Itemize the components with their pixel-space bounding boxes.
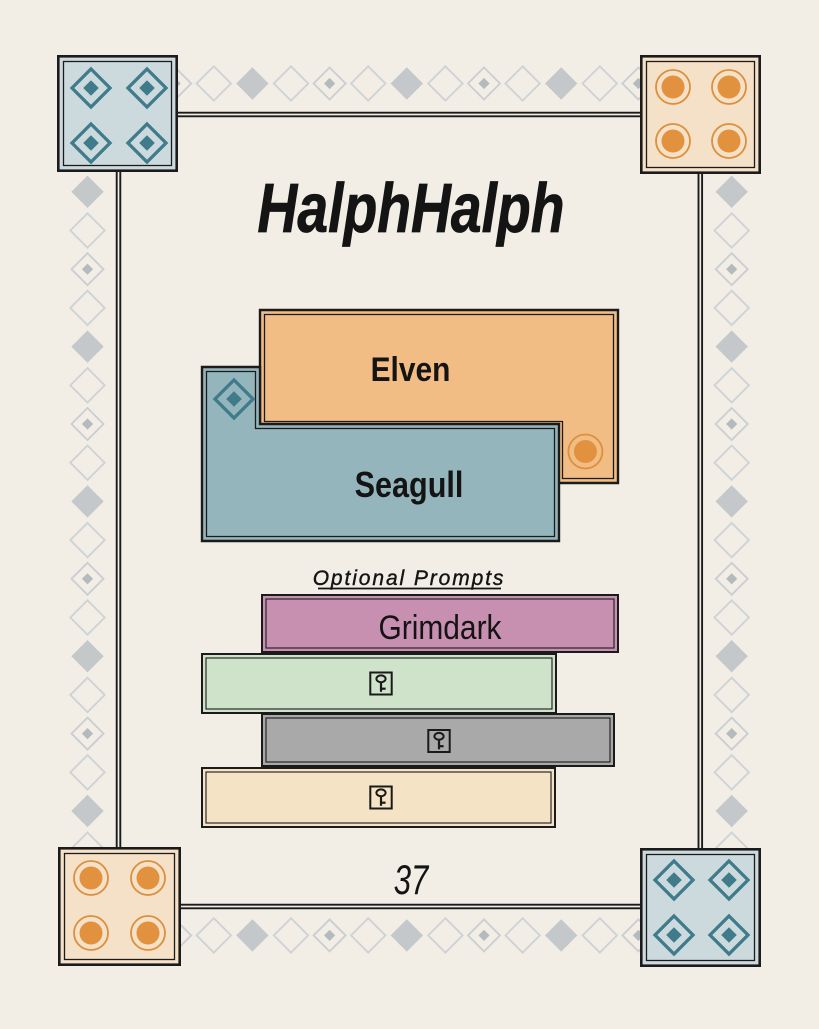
- svg-text:Elven: Elven: [371, 350, 451, 388]
- svg-text:HalphHalph: HalphHalph: [257, 170, 564, 248]
- svg-text:Seagull: Seagull: [355, 466, 464, 506]
- svg-text:Optional Prompts: Optional Prompts: [313, 567, 506, 590]
- svg-text:Grimdark: Grimdark: [379, 608, 503, 646]
- svg-text:37: 37: [394, 856, 430, 903]
